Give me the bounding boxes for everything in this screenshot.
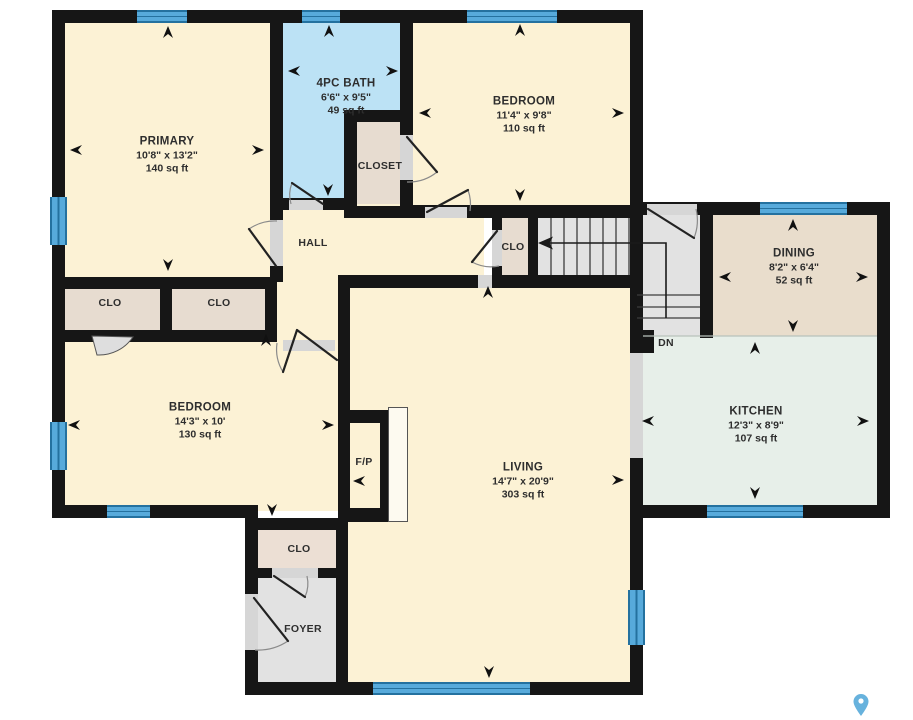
stairs-landing [637, 209, 705, 338]
room-name: DINING [769, 247, 819, 261]
room-dims: 8'2" x 6'4" [769, 261, 819, 274]
door-opening [283, 340, 335, 351]
room-label-dining: DINING 8'2" x 6'4" 52 sq ft [769, 247, 819, 286]
window [107, 505, 150, 518]
room-area: 130 sq ft [169, 428, 231, 441]
room-dims: 14'3" x 10' [169, 415, 231, 428]
wall [52, 277, 277, 289]
room-name: PRIMARY [136, 135, 198, 149]
label-hall: HALL [298, 237, 327, 249]
room-dims: 12'3" x 8'9" [728, 419, 784, 432]
wall [52, 330, 277, 342]
door-opening [289, 200, 323, 210]
room-name: BEDROOM [493, 95, 555, 109]
window [302, 10, 340, 23]
door-opening [245, 594, 258, 650]
room-floor-closet2 [168, 283, 271, 336]
door-opening [647, 204, 697, 215]
door-opening [270, 220, 283, 266]
window [373, 682, 530, 695]
room-label-bedroom2: BEDROOM 11'4" x 9'8" 110 sq ft [493, 95, 555, 134]
room-name: 4PC BATH [316, 77, 375, 91]
room-area: 107 sq ft [728, 432, 784, 445]
fireplace-hearth [388, 407, 408, 522]
window [50, 422, 67, 470]
wall [700, 210, 713, 338]
fireplace-wall [344, 508, 388, 522]
door-opening [272, 568, 318, 578]
door-opening [400, 135, 413, 180]
label-fireplace: F/P [355, 456, 372, 468]
label-stairs-down: DN [658, 337, 674, 349]
wall [52, 505, 258, 518]
room-label-primary: PRIMARY 10'8" x 13'2" 140 sq ft [136, 135, 198, 174]
door-opening [425, 207, 467, 218]
room-area: 140 sq ft [136, 162, 198, 175]
room-name: LIVING [492, 461, 554, 475]
wall [338, 275, 350, 518]
room-dims: 11'4" x 9'8" [493, 109, 555, 122]
window [760, 202, 847, 215]
room-dims: 10'8" x 13'2" [136, 149, 198, 162]
map-pin-icon [854, 694, 869, 716]
room-floor-closet1 [58, 283, 164, 336]
label-foyer-clo: CLO [287, 543, 310, 555]
fireplace-wall [380, 423, 388, 508]
room-label-living: LIVING 14'7" x 20'9" 303 sq ft [492, 461, 554, 500]
wall [630, 458, 643, 695]
window [628, 590, 645, 645]
label-hall-clo: CLO [501, 241, 524, 253]
label-clo-2: CLO [207, 297, 230, 309]
room-area: 110 sq ft [493, 122, 555, 135]
wall [492, 275, 643, 288]
wall [630, 222, 643, 353]
wall [338, 275, 478, 288]
cased-opening [630, 353, 643, 458]
window [707, 505, 803, 518]
fireplace-wall [344, 410, 388, 423]
room-dims: 14'7" x 20'9" [492, 475, 554, 488]
wall [245, 518, 348, 530]
label-clo-1: CLO [98, 297, 121, 309]
wall [630, 10, 643, 222]
floor-plan: PRIMARY 10'8" x 13'2" 140 sq ft 4PC BATH… [0, 0, 913, 720]
wall [877, 202, 890, 518]
label-closet: CLOSET [358, 160, 402, 172]
cased-opening [478, 275, 492, 288]
room-dims: 6'6" x 9'5" [316, 91, 375, 104]
room-label-kitchen: KITCHEN 12'3" x 8'9" 107 sq ft [728, 405, 784, 444]
stairs-upper-run [532, 209, 642, 281]
window [467, 10, 557, 23]
room-label-bath: 4PC BATH 6'6" x 9'5" 49 sq ft [316, 77, 375, 116]
room-name: BEDROOM [169, 401, 231, 415]
window [137, 10, 187, 23]
wall [336, 518, 348, 695]
room-area: 49 sq ft [316, 104, 375, 117]
room-area: 303 sq ft [492, 488, 554, 501]
room-label-bedroom3: BEDROOM 14'3" x 10' 130 sq ft [169, 401, 231, 440]
room-area: 52 sq ft [769, 274, 819, 287]
window [50, 197, 67, 245]
room-name: KITCHEN [728, 405, 784, 419]
label-foyer: FOYER [284, 623, 322, 635]
